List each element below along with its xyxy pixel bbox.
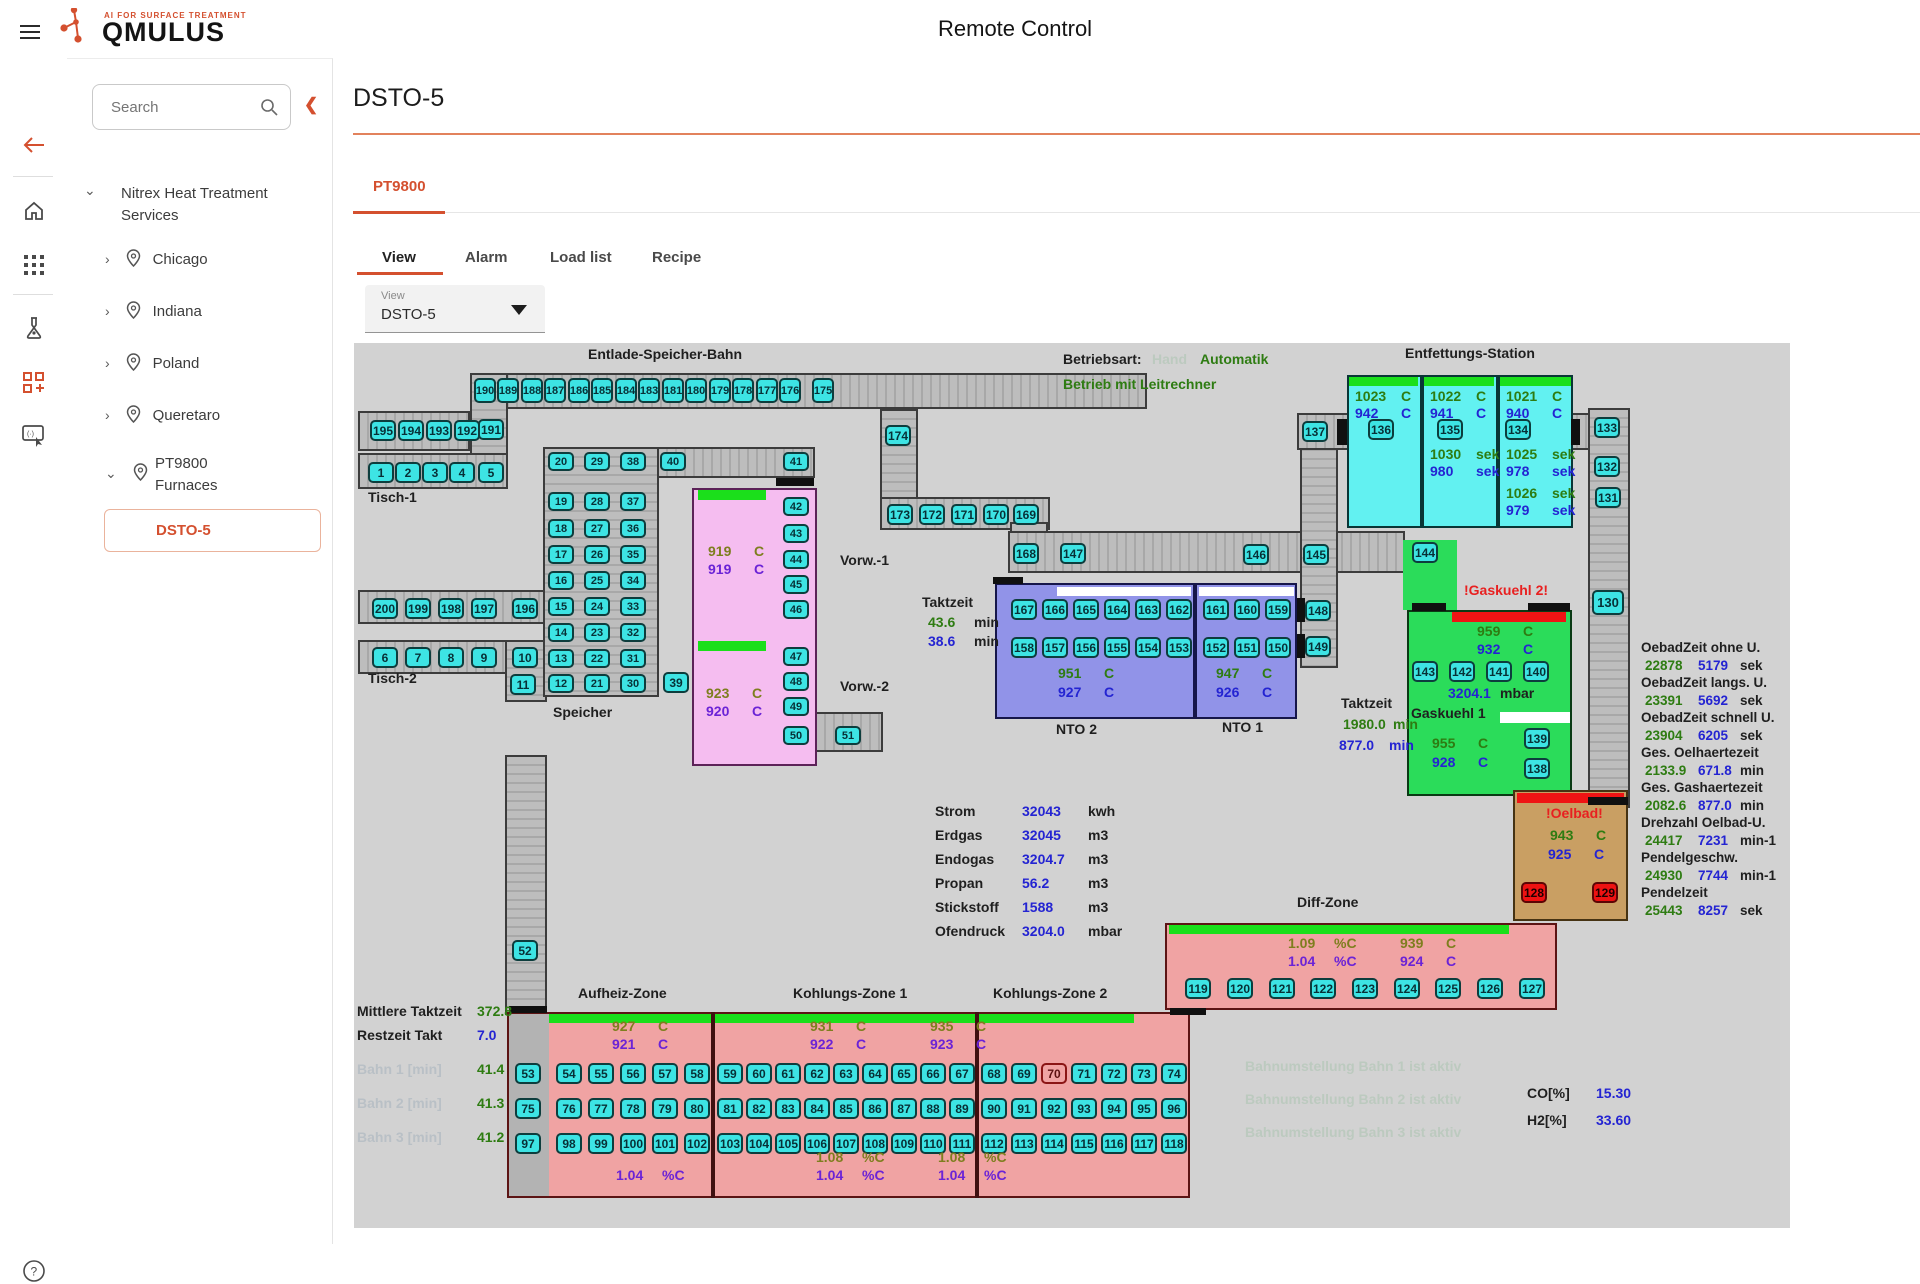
station-box-80[interactable]: 80 <box>684 1098 710 1119</box>
diagram-label: Vorw.-2 <box>840 679 889 694</box>
station-box-197[interactable]: 197 <box>471 598 497 619</box>
station-box-101[interactable]: 101 <box>652 1133 678 1154</box>
tab-recipe[interactable]: Recipe <box>652 249 701 266</box>
chevron-down-icon[interactable]: ⌄ <box>105 465 117 482</box>
metric-label: Ges. Oelhaertezeit <box>1641 746 1759 761</box>
station-box-28[interactable]: 28 <box>584 492 610 511</box>
pt-label-line1: PT9800 <box>155 455 208 472</box>
metric-unit: sek <box>1740 729 1763 744</box>
value: 941 <box>1430 406 1476 421</box>
svg-text:(·): (·) <box>27 431 34 438</box>
station-box-26[interactable]: 26 <box>584 545 610 564</box>
unit: sek <box>1552 486 1575 501</box>
station-box-27[interactable]: 27 <box>584 519 610 538</box>
station-box-102[interactable]: 102 <box>684 1133 710 1154</box>
station-box-118[interactable]: 118 <box>1161 1133 1187 1154</box>
station-box-164[interactable]: 164 <box>1104 599 1130 620</box>
station-box-96[interactable]: 96 <box>1161 1098 1187 1119</box>
station-box-132[interactable]: 132 <box>1594 456 1620 477</box>
back-icon[interactable] <box>21 132 47 158</box>
diagram-label: Bahnumstellung Bahn 3 ist aktiv <box>1245 1125 1461 1140</box>
diagram-value-pair: 935C <box>930 1019 986 1034</box>
tab-view[interactable]: View <box>382 249 416 266</box>
sidebar-item-dsto5-selected[interactable]: DSTO-5 <box>104 509 321 552</box>
station-box-91[interactable]: 91 <box>1011 1098 1037 1119</box>
zone-shape <box>1500 377 1571 386</box>
station-box-88[interactable]: 88 <box>920 1098 946 1119</box>
metric-unit: min-1 <box>1740 834 1776 849</box>
station-box-160[interactable]: 160 <box>1234 599 1260 620</box>
unit: sek <box>1476 447 1499 462</box>
diagram-label: NTO 1 <box>1222 720 1263 735</box>
diagram-value-pair: 923C <box>930 1037 986 1052</box>
station-box-9[interactable]: 9 <box>471 647 497 668</box>
sidebar-item-queretaro[interactable]: › Queretaro <box>105 405 220 427</box>
station-box-45[interactable]: 45 <box>783 575 809 594</box>
station-box-168[interactable]: 168 <box>1013 543 1039 564</box>
station-box-128[interactable]: 128 <box>1521 882 1547 903</box>
station-box-156[interactable]: 156 <box>1073 637 1099 658</box>
station-box-191[interactable]: 191 <box>478 419 504 440</box>
tree-item-org[interactable]: ⌄ Nitrex Heat Treatment Services <box>84 182 96 200</box>
station-box-79[interactable]: 79 <box>652 1098 678 1119</box>
station-box-30[interactable]: 30 <box>620 674 646 693</box>
unit: C <box>1476 406 1486 421</box>
station-box-34[interactable]: 34 <box>620 571 646 590</box>
station-box-167[interactable]: 167 <box>1011 599 1037 620</box>
diagram-value-pair: 951C <box>1058 666 1114 681</box>
station-box-131[interactable]: 131 <box>1595 487 1621 508</box>
connector <box>1412 603 1446 611</box>
station-box-174[interactable]: 174 <box>885 425 911 446</box>
station-box-124[interactable]: 124 <box>1394 978 1420 999</box>
remote-screen-icon[interactable]: (·) <box>21 423 47 449</box>
station-box-185[interactable]: 185 <box>591 378 613 403</box>
tab-pt9800[interactable]: PT9800 <box>373 178 426 195</box>
station-box-78[interactable]: 78 <box>620 1098 646 1119</box>
station-box-66[interactable]: 66 <box>920 1063 946 1084</box>
station-box-53[interactable]: 53 <box>515 1063 541 1084</box>
station-box-152[interactable]: 152 <box>1203 637 1229 658</box>
connector <box>1588 797 1628 805</box>
unit: C <box>1594 847 1604 862</box>
station-box-89[interactable]: 89 <box>949 1098 975 1119</box>
station-box-52[interactable]: 52 <box>512 940 538 961</box>
station-box-163[interactable]: 163 <box>1135 599 1161 620</box>
diagram-label: !Oelbad! <box>1546 806 1603 821</box>
station-box-77[interactable]: 77 <box>588 1098 614 1119</box>
station-box-126[interactable]: 126 <box>1477 978 1503 999</box>
station-box-137[interactable]: 137 <box>1302 421 1328 442</box>
search-input[interactable] <box>109 98 253 117</box>
station-box-142[interactable]: 142 <box>1449 661 1475 682</box>
zone-shape <box>1199 587 1294 596</box>
value: 955 <box>1432 736 1478 751</box>
station-box-180[interactable]: 180 <box>685 378 707 403</box>
value: 922 <box>810 1037 856 1052</box>
station-box-11[interactable]: 11 <box>510 674 536 695</box>
station-box-76[interactable]: 76 <box>556 1098 582 1119</box>
station-box-117[interactable]: 117 <box>1131 1133 1157 1154</box>
station-box-189[interactable]: 189 <box>497 378 519 403</box>
station-box-173[interactable]: 173 <box>887 504 913 525</box>
station-box-196[interactable]: 196 <box>512 598 538 619</box>
station-box-47[interactable]: 47 <box>783 647 809 666</box>
station-box-162[interactable]: 162 <box>1166 599 1192 620</box>
unit: mbar <box>1500 686 1534 701</box>
station-box-157[interactable]: 157 <box>1042 637 1068 658</box>
search-box[interactable] <box>92 84 291 130</box>
station-box-31[interactable]: 31 <box>620 649 646 668</box>
station-box-148[interactable]: 148 <box>1305 600 1331 621</box>
station-box-73[interactable]: 73 <box>1131 1063 1157 1084</box>
station-box-139[interactable]: 139 <box>1524 728 1550 749</box>
unit: %C <box>984 1150 1007 1165</box>
station-box-113[interactable]: 113 <box>1011 1133 1037 1154</box>
station-box-13[interactable]: 13 <box>548 649 574 668</box>
diagram-value-pair: 980sek <box>1430 464 1499 479</box>
metric-unit: sek <box>1740 904 1763 919</box>
station-box-109[interactable]: 109 <box>891 1133 917 1154</box>
station-box-69[interactable]: 69 <box>1011 1063 1037 1084</box>
station-box-44[interactable]: 44 <box>783 550 809 569</box>
station-box-166[interactable]: 166 <box>1042 599 1068 620</box>
station-box-100[interactable]: 100 <box>620 1133 646 1154</box>
station-box-39[interactable]: 39 <box>663 672 689 693</box>
station-box-67[interactable]: 67 <box>949 1063 975 1084</box>
unit: C <box>1552 389 1562 404</box>
station-box-177[interactable]: 177 <box>756 378 778 403</box>
value: 1.09 <box>1288 936 1334 951</box>
sidebar-item-indiana[interactable]: › Indiana <box>105 301 202 323</box>
station-box-7[interactable]: 7 <box>405 647 431 668</box>
station-box-87[interactable]: 87 <box>891 1098 917 1119</box>
chevron-right-icon[interactable]: › <box>105 251 110 267</box>
station-box-46[interactable]: 46 <box>783 600 809 619</box>
tab-alarm[interactable]: Alarm <box>465 249 508 266</box>
station-box-136[interactable]: 136 <box>1368 419 1394 440</box>
station-box-144[interactable]: 144 <box>1412 542 1438 563</box>
station-box-120[interactable]: 120 <box>1227 978 1253 999</box>
station-box-2[interactable]: 2 <box>395 462 421 483</box>
station-box-63[interactable]: 63 <box>833 1063 859 1084</box>
station-box-24[interactable]: 24 <box>584 597 610 616</box>
flask-icon[interactable] <box>21 315 47 341</box>
sidebar-item-poland[interactable]: › Poland <box>105 353 199 375</box>
metric-unit: sek <box>1740 694 1763 709</box>
station-box-90[interactable]: 90 <box>981 1098 1007 1119</box>
diagram-value-pair: 947C <box>1216 666 1272 681</box>
diagram-label: Automatik <box>1200 352 1268 367</box>
diagram-value-pair: 932C <box>1477 642 1533 657</box>
station-box-195[interactable]: 195 <box>370 420 396 441</box>
station-box-51[interactable]: 51 <box>835 726 861 745</box>
apps-grid-icon[interactable] <box>21 252 47 278</box>
dropdown-caret-icon <box>511 305 527 315</box>
value: 3204.1 <box>1448 686 1500 701</box>
station-box-187[interactable]: 187 <box>544 378 566 403</box>
menu-icon[interactable] <box>20 21 40 37</box>
metric-unit: min <box>1740 764 1764 779</box>
station-box-99[interactable]: 99 <box>588 1133 614 1154</box>
value: 942 <box>1355 406 1401 421</box>
station-box-184[interactable]: 184 <box>615 378 637 403</box>
station-box-60[interactable]: 60 <box>746 1063 772 1084</box>
station-box-149[interactable]: 149 <box>1305 636 1331 657</box>
diagram-value-pair: 919C <box>708 544 764 559</box>
station-box-119[interactable]: 119 <box>1185 978 1211 999</box>
collapse-sidebar-icon[interactable]: ❮ <box>304 95 318 115</box>
view-select[interactable]: View DSTO-5 <box>365 285 545 333</box>
station-box-32[interactable]: 32 <box>620 623 646 642</box>
station-box-29[interactable]: 29 <box>584 452 610 471</box>
station-box-134[interactable]: 134 <box>1505 419 1531 440</box>
station-box-6[interactable]: 6 <box>372 647 398 668</box>
station-box-70[interactable]: 70 <box>1041 1063 1067 1084</box>
station-box-50[interactable]: 50 <box>783 726 809 745</box>
unit: C <box>1446 936 1456 951</box>
station-box-121[interactable]: 121 <box>1269 978 1295 999</box>
station-box-161[interactable]: 161 <box>1203 599 1229 620</box>
connector <box>1170 1008 1206 1015</box>
station-box-83[interactable]: 83 <box>775 1098 801 1119</box>
station-box-54[interactable]: 54 <box>556 1063 582 1084</box>
station-box-186[interactable]: 186 <box>568 378 590 403</box>
station-box-49[interactable]: 49 <box>783 697 809 716</box>
station-box-8[interactable]: 8 <box>438 647 464 668</box>
station-box-25[interactable]: 25 <box>584 571 610 590</box>
station-box-122[interactable]: 122 <box>1310 978 1336 999</box>
station-box-115[interactable]: 115 <box>1071 1133 1097 1154</box>
station-box-140[interactable]: 140 <box>1523 661 1549 682</box>
station-box-175[interactable]: 175 <box>812 378 834 403</box>
metric-value-actual: 877.0 <box>1698 799 1732 814</box>
search-icon <box>260 98 278 116</box>
station-box-56[interactable]: 56 <box>620 1063 646 1084</box>
station-box-181[interactable]: 181 <box>662 378 684 403</box>
diagram-label: Taktzeit <box>1341 696 1392 711</box>
diagram-value-pair: 922C <box>810 1037 866 1052</box>
station-box-14[interactable]: 14 <box>548 623 574 642</box>
chevron-right-icon[interactable]: › <box>105 355 110 371</box>
station-box-188[interactable]: 188 <box>521 378 543 403</box>
station-box-48[interactable]: 48 <box>783 672 809 691</box>
takt-value: 41.4 <box>477 1062 504 1077</box>
station-box-74[interactable]: 74 <box>1161 1063 1187 1084</box>
station-box-57[interactable]: 57 <box>652 1063 678 1084</box>
station-box-36[interactable]: 36 <box>620 519 646 538</box>
station-box-154[interactable]: 154 <box>1135 637 1161 658</box>
unit: C <box>1523 624 1533 639</box>
value: 947 <box>1216 666 1262 681</box>
chevron-right-icon[interactable]: › <box>105 303 110 319</box>
station-box-105[interactable]: 105 <box>775 1133 801 1154</box>
station-box-129[interactable]: 129 <box>1592 882 1618 903</box>
station-box-20[interactable]: 20 <box>548 452 574 471</box>
station-box-85[interactable]: 85 <box>833 1098 859 1119</box>
takt-label: Mittlere Taktzeit <box>357 1004 462 1019</box>
station-box-116[interactable]: 116 <box>1101 1133 1127 1154</box>
station-box-15[interactable]: 15 <box>548 597 574 616</box>
station-box-58[interactable]: 58 <box>684 1063 710 1084</box>
station-box-92[interactable]: 92 <box>1041 1098 1067 1119</box>
station-box-3[interactable]: 3 <box>422 462 448 483</box>
station-box-151[interactable]: 151 <box>1234 637 1260 658</box>
station-box-97[interactable]: 97 <box>515 1133 541 1154</box>
value: 926 <box>1216 685 1262 700</box>
station-box-62[interactable]: 62 <box>804 1063 830 1084</box>
chevron-down-icon[interactable]: ⌄ <box>84 182 96 198</box>
location-pin-icon <box>133 463 148 481</box>
unit: C <box>1478 736 1488 751</box>
station-box-22[interactable]: 22 <box>584 649 610 668</box>
station-box-72[interactable]: 72 <box>1101 1063 1127 1084</box>
station-box-125[interactable]: 125 <box>1435 978 1461 999</box>
station-box-104[interactable]: 104 <box>746 1133 772 1154</box>
station-box-138[interactable]: 138 <box>1524 758 1550 779</box>
station-box-158[interactable]: 158 <box>1011 637 1037 658</box>
station-box-18[interactable]: 18 <box>548 519 574 538</box>
home-icon[interactable] <box>21 198 47 224</box>
station-box-40[interactable]: 40 <box>660 452 686 471</box>
sidebar: ❮ ⌄ Nitrex Heat Treatment Services › Chi… <box>67 58 333 1244</box>
consumption-unit: kwh <box>1088 804 1115 819</box>
station-box-38[interactable]: 38 <box>620 452 646 471</box>
station-box-42[interactable]: 42 <box>783 497 809 516</box>
station-box-155[interactable]: 155 <box>1104 637 1130 658</box>
station-box-68[interactable]: 68 <box>981 1063 1007 1084</box>
station-box-143[interactable]: 143 <box>1412 661 1438 682</box>
station-box-192[interactable]: 192 <box>454 420 480 441</box>
station-box-33[interactable]: 33 <box>620 597 646 616</box>
unit: C <box>976 1037 986 1052</box>
station-box-64[interactable]: 64 <box>862 1063 888 1084</box>
zone-shape <box>1169 925 1509 934</box>
station-box-150[interactable]: 150 <box>1265 637 1291 658</box>
station-box-59[interactable]: 59 <box>717 1063 743 1084</box>
station-box-114[interactable]: 114 <box>1041 1133 1067 1154</box>
sidebar-item-label: Chicago <box>153 251 208 268</box>
consumption-unit: m3 <box>1088 876 1108 891</box>
connector <box>1297 634 1305 658</box>
chevron-right-icon[interactable]: › <box>105 407 110 423</box>
diagram-value-pair: 1.04%C <box>938 1168 1007 1183</box>
station-box-147[interactable]: 147 <box>1060 543 1086 564</box>
station-box-10[interactable]: 10 <box>512 647 538 668</box>
station-box-17[interactable]: 17 <box>548 545 574 564</box>
value: 1.04 <box>616 1168 662 1183</box>
station-box-86[interactable]: 86 <box>862 1098 888 1119</box>
station-box-133[interactable]: 133 <box>1594 417 1620 438</box>
station-box-135[interactable]: 135 <box>1437 419 1463 440</box>
station-box-130[interactable]: 130 <box>1592 590 1624 615</box>
value: 927 <box>1058 685 1104 700</box>
station-box-94[interactable]: 94 <box>1101 1098 1127 1119</box>
station-box-23[interactable]: 23 <box>584 623 610 642</box>
station-box-95[interactable]: 95 <box>1131 1098 1157 1119</box>
takt-value: 7.0 <box>477 1028 496 1043</box>
station-box-176[interactable]: 176 <box>779 378 801 403</box>
station-box-172[interactable]: 172 <box>919 504 945 525</box>
diagram-value-pair: 1030sek <box>1430 447 1499 462</box>
station-box-82[interactable]: 82 <box>746 1098 772 1119</box>
diagram-label: Vorw.-1 <box>840 553 889 568</box>
page-title: DSTO-5 <box>353 84 444 113</box>
station-box-1[interactable]: 1 <box>368 462 394 483</box>
station-box-194[interactable]: 194 <box>398 420 424 441</box>
station-box-145[interactable]: 145 <box>1303 544 1329 565</box>
station-box-4[interactable]: 4 <box>449 462 475 483</box>
value: 978 <box>1506 464 1552 479</box>
station-box-190[interactable]: 190 <box>474 378 496 403</box>
station-box-98[interactable]: 98 <box>556 1133 582 1154</box>
station-box-65[interactable]: 65 <box>891 1063 917 1084</box>
station-box-159[interactable]: 159 <box>1265 599 1291 620</box>
zone-shape <box>1193 583 1197 719</box>
station-box-75[interactable]: 75 <box>515 1098 541 1119</box>
station-box-170[interactable]: 170 <box>983 504 1009 525</box>
station-box-141[interactable]: 141 <box>1486 661 1512 682</box>
tab-pt9800-underline <box>353 211 445 214</box>
station-box-12[interactable]: 12 <box>548 674 574 693</box>
station-box-93[interactable]: 93 <box>1071 1098 1097 1119</box>
sidebar-item-chicago[interactable]: › Chicago <box>105 249 208 271</box>
unit: %C <box>862 1150 885 1165</box>
svg-text:?: ? <box>31 1265 38 1279</box>
station-box-123[interactable]: 123 <box>1352 978 1378 999</box>
station-box-55[interactable]: 55 <box>588 1063 614 1084</box>
unit: %C <box>984 1168 1007 1183</box>
sidebar-item-label: Indiana <box>153 303 202 320</box>
station-box-146[interactable]: 146 <box>1243 544 1269 565</box>
app-logo[interactable]: AI FOR SURFACE TREATMENT QMULUS <box>60 8 247 48</box>
station-box-21[interactable]: 21 <box>584 674 610 693</box>
consumption-value: 3204.0 <box>1022 924 1065 939</box>
add-widget-icon[interactable] <box>21 370 47 396</box>
station-box-171[interactable]: 171 <box>951 504 977 525</box>
station-box-179[interactable]: 179 <box>709 378 731 403</box>
station-box-165[interactable]: 165 <box>1073 599 1099 620</box>
station-box-199[interactable]: 199 <box>405 598 431 619</box>
logo-name: QMULUS <box>102 20 247 44</box>
help-icon[interactable]: ? <box>21 1258 47 1284</box>
station-box-178[interactable]: 178 <box>732 378 754 403</box>
station-box-193[interactable]: 193 <box>426 420 452 441</box>
station-box-19[interactable]: 19 <box>548 492 574 511</box>
station-box-103[interactable]: 103 <box>717 1133 743 1154</box>
station-box-35[interactable]: 35 <box>620 545 646 564</box>
station-box-127[interactable]: 127 <box>1519 978 1545 999</box>
station-box-5[interactable]: 5 <box>478 462 504 483</box>
station-box-41[interactable]: 41 <box>783 452 809 471</box>
station-box-153[interactable]: 153 <box>1166 637 1192 658</box>
station-box-16[interactable]: 16 <box>548 571 574 590</box>
station-box-61[interactable]: 61 <box>775 1063 801 1084</box>
station-box-71[interactable]: 71 <box>1071 1063 1097 1084</box>
station-box-183[interactable]: 183 <box>638 378 660 403</box>
consumption-label: Erdgas <box>935 828 982 843</box>
station-box-84[interactable]: 84 <box>804 1098 830 1119</box>
station-box-200[interactable]: 200 <box>372 598 398 619</box>
tab-load-list[interactable]: Load list <box>550 249 612 266</box>
diagram-value-pair: 927C <box>612 1019 668 1034</box>
unit: %C <box>662 1168 685 1183</box>
station-box-43[interactable]: 43 <box>783 524 809 543</box>
station-box-198[interactable]: 198 <box>438 598 464 619</box>
station-box-37[interactable]: 37 <box>620 492 646 511</box>
station-box-169[interactable]: 169 <box>1013 504 1039 525</box>
station-box-81[interactable]: 81 <box>717 1098 743 1119</box>
